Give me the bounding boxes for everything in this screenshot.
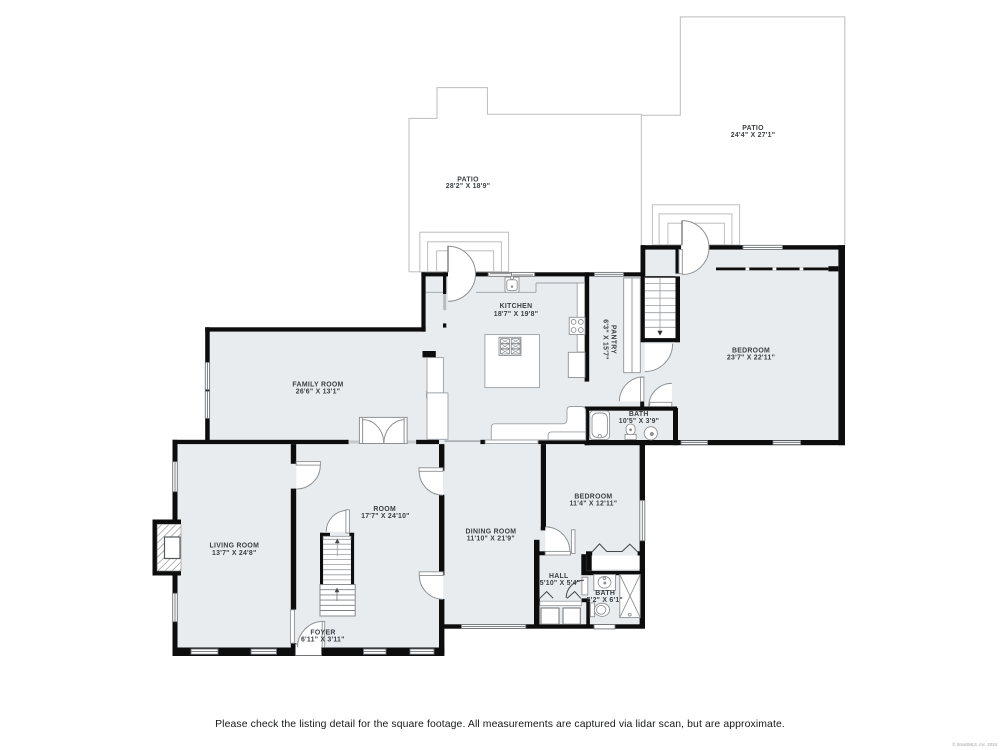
svg-text:FOYER: FOYER — [310, 630, 335, 637]
svg-text:DINING ROOM: DINING ROOM — [466, 528, 517, 535]
svg-text:ROOM: ROOM — [373, 506, 396, 513]
svg-text:© SmartMLS, Inc. 2024: © SmartMLS, Inc. 2024 — [952, 742, 997, 747]
svg-text:13'7" X 24'8": 13'7" X 24'8" — [212, 550, 256, 557]
svg-text:6'11" X 3'11": 6'11" X 3'11" — [301, 637, 345, 644]
svg-text:BEDROOM: BEDROOM — [574, 493, 612, 500]
svg-text:17'7" X 24'10": 17'7" X 24'10" — [361, 513, 410, 520]
svg-text:BEDROOM: BEDROOM — [732, 347, 770, 354]
svg-text:LIVING ROOM: LIVING ROOM — [209, 543, 259, 550]
svg-text:PATIO: PATIO — [742, 125, 764, 132]
svg-text:PANTRY: PANTRY — [610, 325, 617, 354]
svg-text:6'3" X 15'7": 6'3" X 15'7" — [602, 319, 609, 359]
svg-text:5'10" X 5'4": 5'10" X 5'4" — [540, 580, 580, 587]
svg-text:23'7" X 22'11": 23'7" X 22'11" — [727, 355, 775, 362]
svg-text:FAMILY ROOM: FAMILY ROOM — [292, 381, 343, 388]
svg-text:28'2" X 18'9": 28'2" X 18'9" — [446, 183, 490, 190]
svg-text:11'10" X 21'9": 11'10" X 21'9" — [467, 535, 515, 542]
svg-text:KITCHEN: KITCHEN — [500, 303, 533, 310]
svg-text:BATH: BATH — [595, 590, 615, 597]
svg-text:BATH: BATH — [629, 411, 649, 418]
svg-text:24'4" X 27'1": 24'4" X 27'1" — [731, 132, 775, 139]
svg-text:11'4" X 12'11": 11'4" X 12'11" — [569, 500, 617, 507]
svg-text:26'6" X 13'1": 26'6" X 13'1" — [296, 389, 340, 396]
svg-text:Please check the listing detai: Please check the listing detail for the … — [215, 719, 785, 730]
svg-text:10'5" X 3'9": 10'5" X 3'9" — [619, 418, 659, 425]
svg-text:5'2" X 6'1": 5'2" X 6'1" — [587, 597, 623, 604]
svg-text:18'7" X 19'8": 18'7" X 19'8" — [494, 311, 538, 318]
